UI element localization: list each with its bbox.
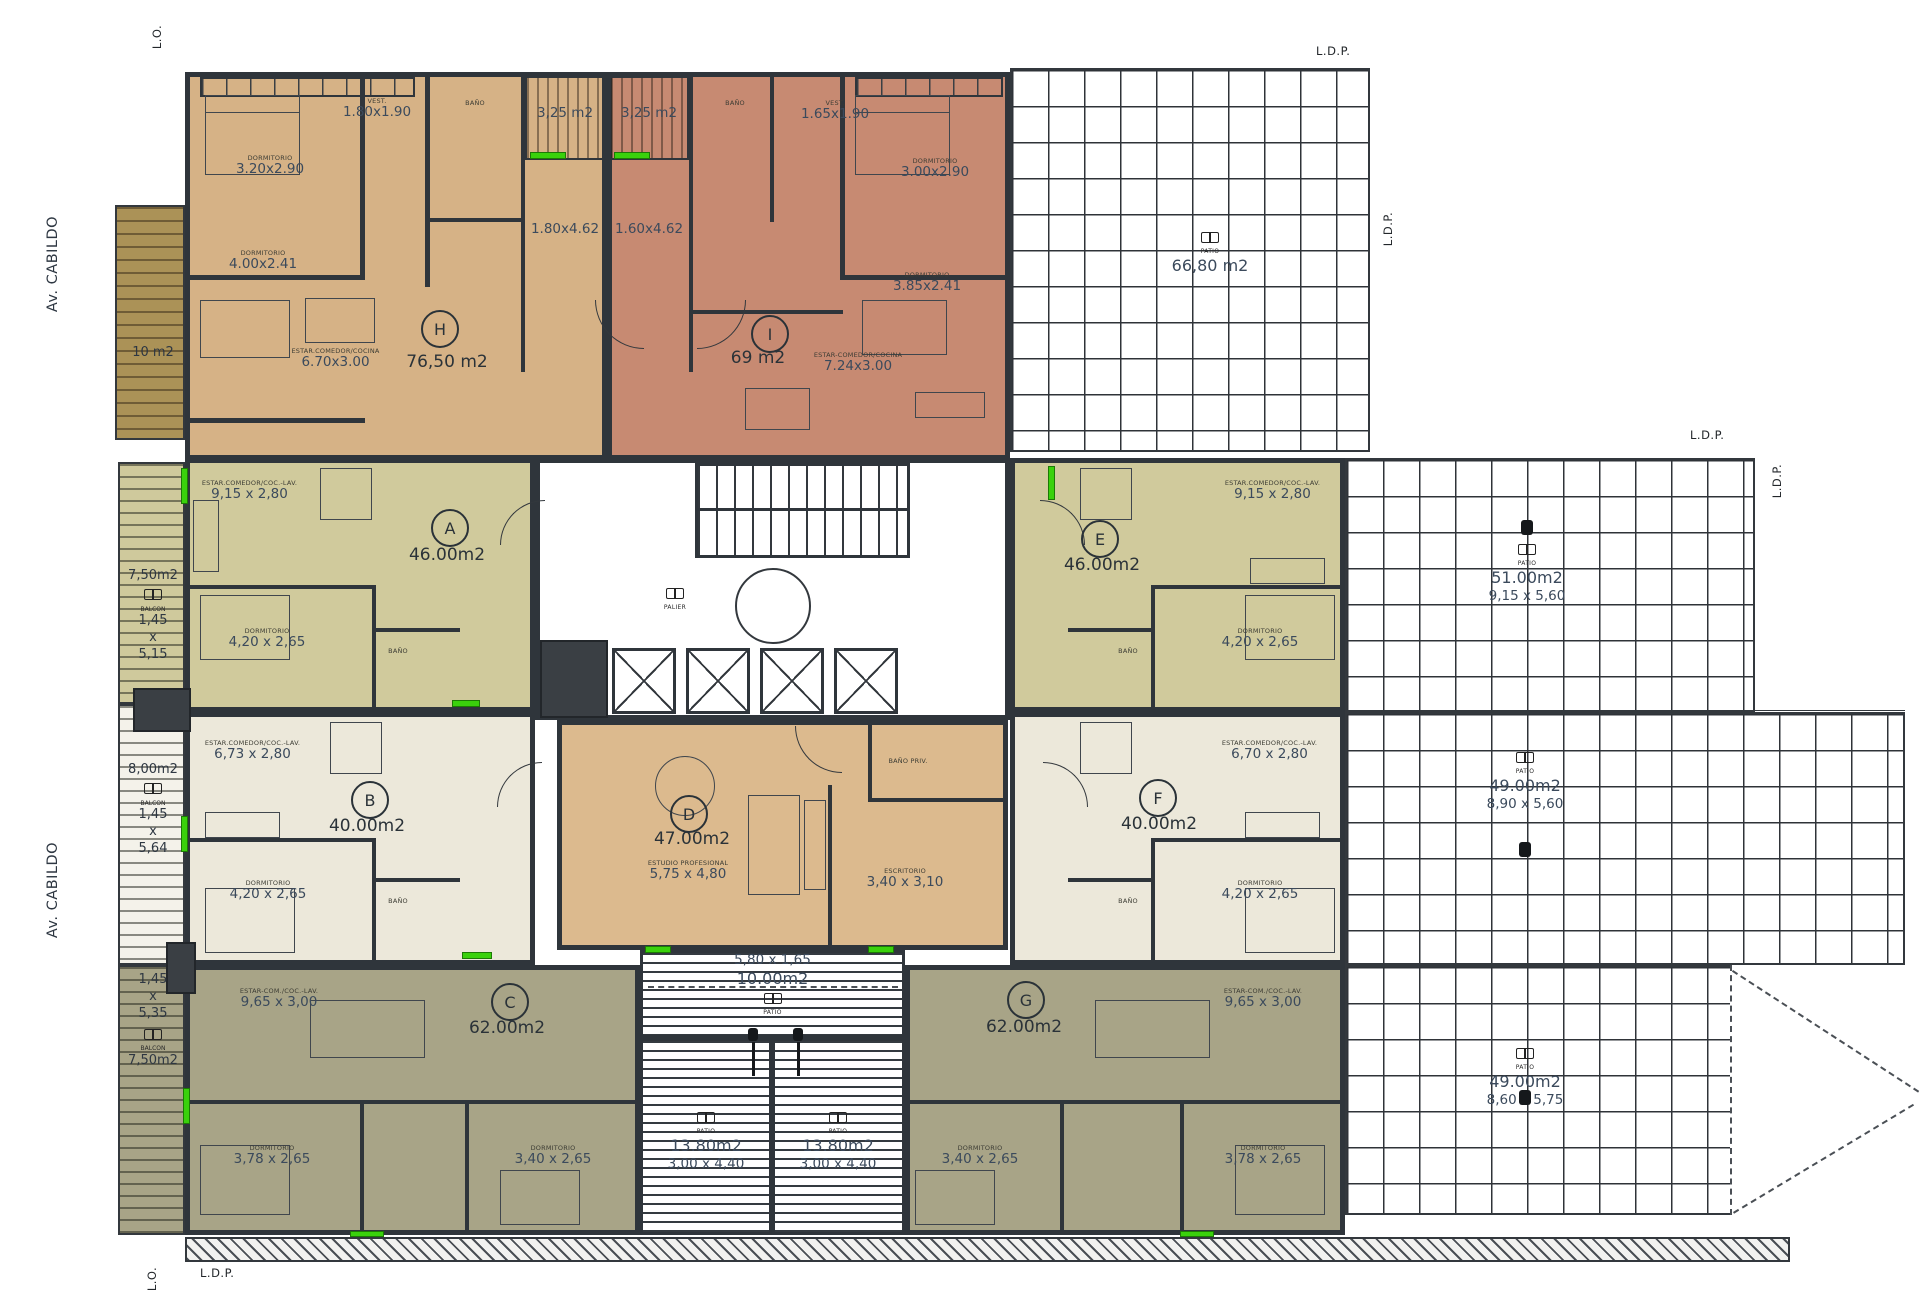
wall — [1068, 628, 1152, 632]
patio-text: PATIO — [700, 1009, 845, 1017]
window-accent — [614, 152, 650, 159]
palier-icon — [666, 588, 684, 599]
unit-e-circle: E — [1081, 520, 1119, 558]
wall — [868, 722, 872, 802]
furniture-dining-table — [1095, 1000, 1210, 1058]
room-dim: 5,75 x 4,80 — [628, 867, 748, 883]
room-dim: 3,78 x 2,65 — [1208, 1152, 1318, 1168]
room-label-b-bath: BAÑO — [365, 898, 431, 905]
furniture-table — [305, 298, 375, 343]
furniture-bed — [915, 1170, 995, 1225]
balcony-text: BALCON — [118, 1045, 188, 1053]
floor-plan: L.O. L.D.P. L.D.P. L.D.P. L.D.P. L.D.P. … — [0, 0, 1920, 1308]
plant-icon — [1521, 520, 1533, 535]
patio-area: 49.00m2 — [1460, 776, 1590, 796]
room-dim: 3.85x2.41 — [872, 279, 982, 295]
elevator-2 — [686, 648, 750, 714]
balcony-text: BALCON — [118, 606, 188, 614]
patio-right-middle — [1345, 712, 1905, 965]
balcony-c-label: 1,45 x 5,35 BALCON 7,50m2 — [118, 972, 188, 1070]
boundary-label-lo-bottom: L.O. — [145, 1259, 159, 1299]
wall — [770, 77, 774, 222]
balcony-a-label: 7,50m2 BALCON 1,45 x 5,15 — [118, 568, 188, 664]
elevator-3 — [760, 648, 824, 714]
core-shaft-circle — [735, 568, 811, 644]
service-shaft — [540, 640, 608, 718]
balcony-icon — [144, 783, 162, 794]
room-label-c-dorm2: DORMITORIO 3,40 x 2,65 — [498, 1145, 608, 1168]
room-dim: 3.00x2.90 — [880, 165, 990, 181]
wall — [1151, 585, 1155, 708]
room-label-i-living: ESTAR-COMEDOR/COCINA 7.24x3.00 — [798, 352, 918, 375]
balcony-area: 7,50m2 — [118, 1053, 188, 1070]
unit-d-circle: D — [670, 795, 708, 833]
boundary-label-ldp-bottomleft: L.D.P. — [200, 1266, 234, 1280]
patio-icon — [1516, 752, 1534, 763]
room-dim: 3,40 x 2,65 — [925, 1152, 1035, 1168]
balcony-divider-block-1 — [133, 688, 191, 732]
wall — [828, 785, 832, 947]
balcony-area: 8,00m2 — [118, 762, 188, 779]
room-label-i-dorm2: DORMITORIO 3.85x2.41 — [872, 272, 982, 295]
wall — [465, 1100, 469, 1232]
wall — [1068, 878, 1152, 882]
room-label-a-dorm: DORMITORIO 4,20 x 2,65 — [212, 628, 322, 651]
elevator-1 — [612, 648, 676, 714]
balcony-dim: 5,35 — [118, 1006, 188, 1023]
unit-c-circle: C — [491, 983, 529, 1021]
room-label-e-bath: BAÑO — [1095, 648, 1161, 655]
wall — [689, 72, 693, 372]
room-dim: 1.60x4.62 — [612, 222, 686, 238]
sidewalk-hatch — [185, 1237, 1790, 1262]
wall — [372, 585, 376, 708]
wall — [376, 878, 460, 882]
room-dim: 1.80x4.62 — [528, 222, 602, 238]
room-type: BAÑO — [1095, 648, 1161, 655]
unit-h-area: 76,50 m2 — [397, 352, 497, 372]
room-label-h-vest: VEST. 1.80x1.90 — [327, 98, 427, 121]
furniture-sofa — [1250, 558, 1325, 584]
room-label-b-dorm: DORMITORIO 4,20 x 2,65 — [213, 880, 323, 903]
room-dim: 1.65x1.90 — [785, 107, 885, 123]
room-dim: 3,40 x 2,65 — [498, 1152, 608, 1168]
balcony-icon — [144, 589, 162, 600]
street-label-av-cabildo-1: Av. CABILDO — [45, 199, 61, 329]
patio-area: 51.00m2 — [1467, 568, 1587, 588]
patio-text: PATIO — [642, 1128, 770, 1136]
room-dim: 4,20 x 2,65 — [1205, 887, 1315, 903]
closet-strip-h — [200, 77, 415, 97]
room-type: BAÑO — [365, 898, 431, 905]
room-dim: 7.24x3.00 — [798, 359, 918, 375]
patio-dim: 9,15 x 5,60 — [1467, 588, 1587, 605]
furniture-bed — [862, 300, 947, 355]
wall — [1060, 1100, 1064, 1232]
balcony-dim: x — [118, 824, 188, 841]
room-type: BAÑO PRIV. — [875, 758, 941, 765]
patio-icon — [764, 993, 782, 1004]
window-accent — [645, 946, 671, 953]
balcony-text: BALCON — [118, 800, 188, 808]
room-label-a-living: ESTAR.COMEDOR/COC.-LAV. 9,15 x 2,80 — [192, 480, 307, 503]
room-dim: 9,15 x 2,80 — [1215, 487, 1330, 503]
unit-f-area: 40.00m2 — [1109, 814, 1209, 834]
boundary-label-ldp-mid-v: L.D.P. — [1770, 456, 1784, 506]
room-dim: 4,20 x 2,65 — [212, 635, 322, 651]
wall — [360, 1100, 364, 1232]
room-label-h-bath: BAÑO — [440, 100, 510, 107]
room-dim: 1.80x1.90 — [327, 105, 427, 121]
gate-icon — [748, 1028, 758, 1041]
palier-text: PALIER — [645, 604, 705, 612]
corridor-h-label: 1.80x4.62 — [528, 222, 602, 238]
boundary-label-ldp-topright: L.D.P. — [1316, 44, 1350, 58]
room-dim: 4.00x2.41 — [208, 257, 318, 273]
balcony-dim: 5,64 — [118, 841, 188, 858]
room-label-i-bath: BAÑO — [700, 100, 770, 107]
wall — [190, 1100, 637, 1104]
patio-area: 10.00m2 — [700, 969, 845, 989]
room-label-h-dorm2: DORMITORIO 4.00x2.41 — [208, 250, 318, 273]
elevator-4 — [834, 648, 898, 714]
patio-area: 3,25 m2 — [528, 106, 602, 122]
room-label-i-dorm1: DORMITORIO 3.00x2.90 — [880, 158, 990, 181]
patio-text: PATIO — [774, 1128, 902, 1136]
furniture-table — [745, 388, 810, 430]
unit-g-area: 62.00m2 — [974, 1017, 1074, 1037]
room-dim: 9,65 x 3,00 — [220, 995, 338, 1011]
furniture-table — [320, 468, 372, 520]
plant-icon — [1519, 1090, 1531, 1105]
room-label-f-living: ESTAR.COMEDOR/COC.-LAV. 6,70 x 2,80 — [1212, 740, 1327, 763]
patio-h-small-label: 3,25 m2 — [528, 106, 602, 122]
boundary-line — [1345, 710, 1905, 713]
balcony-top-label: 10 m2 — [118, 345, 188, 362]
unit-d-area: 47.00m2 — [642, 829, 742, 849]
wall — [1180, 1100, 1184, 1232]
room-dim: 4,20 x 2,65 — [1205, 635, 1315, 651]
patio-icon — [1516, 1048, 1534, 1059]
furniture-sofa — [205, 812, 280, 838]
unit-g-circle: G — [1007, 981, 1045, 1019]
room-label-b-living: ESTAR.COMEDOR/COC.-LAV. 6,73 x 2,80 — [195, 740, 310, 763]
unit-b-area: 40.00m2 — [317, 816, 417, 836]
plant-icon — [1519, 842, 1531, 857]
wall — [868, 798, 1005, 802]
room-label-e-dorm: DORMITORIO 4,20 x 2,65 — [1205, 628, 1315, 651]
patio-dim: 5,80 x 1,65 — [700, 952, 845, 969]
patio-center-strip-label: 5,80 x 1,65 10.00m2 PATIO — [700, 952, 845, 1016]
patio-area: 3,25 m2 — [612, 106, 686, 122]
patio-text: PATIO — [1460, 768, 1590, 776]
room-type: BAÑO — [440, 100, 510, 107]
balcony-area: 7,50m2 — [118, 568, 188, 585]
balcony-wood-deck — [115, 205, 185, 440]
wall — [376, 628, 460, 632]
street-label-av-cabildo-2: Av. CABILDO — [45, 825, 61, 955]
unit-c-area: 62.00m2 — [457, 1018, 557, 1038]
room-label-h-living: ESTAR.COMEDOR/COCINA 6.70x3.00 — [278, 348, 393, 371]
wall — [1155, 838, 1340, 842]
room-label-c-dorm1: DORMITORIO 3,78 x 2,65 — [217, 1145, 327, 1168]
boundary-label-lo-top: L.O. — [150, 17, 164, 57]
room-dim: 3.20x2.90 — [215, 162, 325, 178]
stair-landing-divider — [695, 508, 910, 511]
furniture-table — [330, 722, 382, 774]
boundary-label-ldp-right-upper: L.D.P. — [1381, 204, 1395, 254]
patio-center-right-label: PATIO 13.80m2 3,00 x 4,40 — [774, 1108, 902, 1172]
unit-i-area: 69 m2 — [708, 348, 808, 368]
gate-post — [797, 1042, 800, 1076]
balcony-dim: 1,45 — [118, 972, 188, 989]
wall — [425, 218, 521, 222]
furniture-daybed — [748, 795, 800, 895]
room-dim: 6,70 x 2,80 — [1212, 747, 1327, 763]
room-label-f-bath: BAÑO — [1095, 898, 1161, 905]
furniture-sofa — [915, 392, 985, 418]
window-accent — [462, 952, 492, 959]
balcony-dim: x — [118, 630, 188, 647]
patio-icon — [829, 1112, 847, 1123]
patio-area: 13.80m2 — [642, 1136, 770, 1156]
wall — [190, 585, 375, 589]
corridor-i-label: 1.60x4.62 — [612, 222, 686, 238]
room-type: BAÑO — [365, 648, 431, 655]
balcony-icon — [144, 1029, 162, 1040]
furniture-shelf — [804, 800, 826, 890]
window-accent — [530, 152, 566, 159]
balcony-dim: x — [118, 989, 188, 1006]
boundary-label-ldp-mid-h: L.D.P. — [1690, 428, 1724, 442]
room-dim: 6.70x3.00 — [278, 355, 393, 371]
room-label-d-studio: ESTUDIO PROFESIONAL 5,75 x 4,80 — [628, 860, 748, 883]
room-dim: 9,15 x 2,80 — [192, 487, 307, 503]
furniture-pillow — [205, 95, 300, 113]
balcony-area: 10 m2 — [118, 345, 188, 362]
patio-right-upper-label: PATIO 51.00m2 9,15 x 5,60 — [1467, 540, 1587, 604]
closet-strip-i — [855, 77, 1003, 97]
patio-top-right-label: PATIO 66,80 m2 — [1150, 228, 1270, 276]
unit-f-circle: F — [1139, 779, 1177, 817]
room-dim: 9,65 x 3,00 — [1204, 995, 1322, 1011]
furniture-sofa — [193, 500, 219, 572]
patio-text: PATIO — [1460, 1064, 1590, 1072]
unit-b-circle: B — [351, 781, 389, 819]
balcony-dim: 1,45 — [118, 613, 188, 630]
unit-a-area: 46.00m2 — [397, 545, 497, 565]
room-label-g-living: ESTAR-COM./COC.-LAV. 9,65 x 3,00 — [1204, 988, 1322, 1011]
patio-text: PATIO — [1150, 248, 1270, 256]
wall — [1155, 585, 1340, 589]
patio-icon — [1518, 544, 1536, 555]
room-dim: 3,40 x 3,10 — [845, 875, 965, 891]
patio-icon — [1201, 232, 1219, 243]
wall — [190, 838, 375, 842]
patio-dim: 8,90 x 5,60 — [1460, 796, 1590, 813]
patio-dim: 3,00 x 4,40 — [642, 1156, 770, 1173]
patio-icon — [697, 1112, 715, 1123]
room-label-g-dorm1: DORMITORIO 3,40 x 2,65 — [925, 1145, 1035, 1168]
patio-text: PATIO — [1467, 560, 1587, 568]
wall — [190, 418, 365, 423]
room-label-g-dorm2: DORMITORIO 3,78 x 2,65 — [1208, 1145, 1318, 1168]
room-label-i-vest: VEST. 1.65x1.90 — [785, 100, 885, 123]
window-accent — [868, 946, 894, 953]
unit-a-circle: A — [431, 509, 469, 547]
patio-area: 66,80 m2 — [1150, 256, 1270, 276]
furniture-sofa — [1245, 812, 1320, 838]
patio-i-small-label: 3,25 m2 — [612, 106, 686, 122]
room-type: BAÑO — [700, 100, 770, 107]
room-dim: 4,20 x 2,65 — [213, 887, 323, 903]
window-accent — [183, 1088, 190, 1124]
unit-e-area: 46.00m2 — [1052, 555, 1152, 575]
gate-post — [752, 1042, 755, 1076]
room-dim: 3,78 x 2,65 — [217, 1152, 327, 1168]
patio-right-middle-label: PATIO 49.00m2 8,90 x 5,60 — [1460, 748, 1590, 812]
room-type: BAÑO — [1095, 898, 1161, 905]
room-label-a-bath: BAÑO — [365, 648, 431, 655]
room-dim: 6,73 x 2,80 — [195, 747, 310, 763]
patio-dim: 3,00 x 4,40 — [774, 1156, 902, 1173]
balcony-dim: 1,45 — [118, 807, 188, 824]
patio-center-left-label: PATIO 13.80m2 3,00 x 4,40 — [642, 1108, 770, 1172]
room-label-d-office: ESCRITORIO 3,40 x 3,10 — [845, 868, 965, 891]
room-label-f-dorm: DORMITORIO 4,20 x 2,65 — [1205, 880, 1315, 903]
wall — [521, 72, 525, 372]
balcony-b-label: 8,00m2 BALCON 1,45 x 5,64 — [118, 762, 188, 858]
corner-cut-area — [1730, 965, 1907, 1215]
window-accent — [1048, 466, 1055, 500]
wall — [910, 1100, 1342, 1104]
furniture-table — [1080, 722, 1132, 774]
unit-h-circle: H — [421, 310, 459, 348]
window-accent — [452, 700, 480, 707]
patio-area: 49.00m2 — [1460, 1072, 1590, 1092]
room-label-e-living: ESTAR.COMEDOR/COC.-LAV. 9,15 x 2,80 — [1215, 480, 1330, 503]
palier-label: PALIER — [645, 584, 705, 612]
room-label-c-living: ESTAR-COM./COC.-LAV. 9,65 x 3,00 — [220, 988, 338, 1011]
window-accent — [181, 468, 188, 504]
furniture-table — [1080, 468, 1132, 520]
patio-area: 13.80m2 — [774, 1136, 902, 1156]
balcony-dim: 5,15 — [118, 647, 188, 664]
wall — [190, 275, 365, 280]
room-label-h-dorm1: DORMITORIO 3.20x2.90 — [215, 155, 325, 178]
room-label-d-bath: BAÑO PRIV. — [875, 758, 941, 765]
gate-icon — [793, 1028, 803, 1041]
furniture-bed — [200, 300, 290, 358]
furniture-bed — [500, 1170, 580, 1225]
